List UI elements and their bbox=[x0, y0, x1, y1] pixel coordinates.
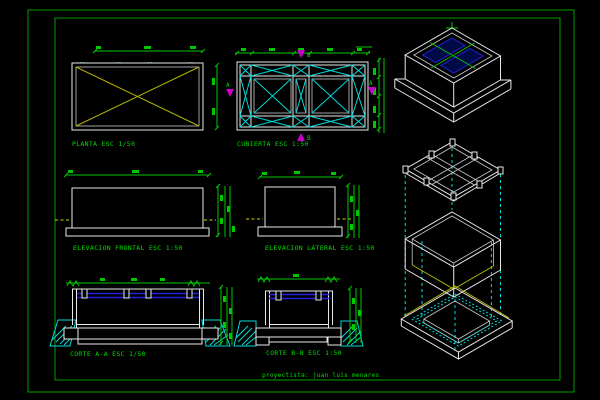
dim-text-blob bbox=[96, 46, 101, 49]
dim-text-blob bbox=[190, 46, 196, 49]
dim-text-blob bbox=[229, 333, 232, 339]
dim-text-blob bbox=[373, 68, 376, 75]
corte-aa-post bbox=[124, 289, 129, 298]
corte-aa-footing-slab bbox=[64, 328, 218, 339]
iso-tank-body-exploded bbox=[405, 212, 500, 297]
corte-bb-post bbox=[276, 291, 281, 300]
dim-text-blob bbox=[373, 106, 376, 113]
iso-frame-post bbox=[429, 151, 434, 158]
planta-right-dimension-line bbox=[215, 63, 219, 130]
section-b-top-arrow-icon bbox=[297, 50, 305, 58]
iso-tank-inner-floor bbox=[412, 265, 493, 289]
dim-text-blob bbox=[160, 278, 165, 281]
dim-text-blob bbox=[352, 298, 355, 304]
dim-text-blob bbox=[132, 170, 139, 173]
cubierta-outline bbox=[237, 62, 368, 130]
cad-sheet: PLANTA ESC 1/50 CUBIERTA ESC 1:50 A A B … bbox=[0, 0, 600, 400]
dim-text-blob bbox=[223, 296, 226, 302]
iso-frame-post bbox=[403, 166, 408, 173]
corte-aa-footing-step bbox=[78, 339, 202, 344]
iso-frame-post bbox=[451, 193, 456, 200]
dim-text-blob bbox=[212, 108, 215, 115]
corte-bb-post bbox=[316, 291, 321, 300]
iso-base-slab-assembled bbox=[395, 79, 511, 122]
corte-bb-label: CORTE B-B ESC 1:50 bbox=[266, 349, 342, 357]
drawing-area: PLANTA ESC 1/50 CUBIERTA ESC 1:50 A A B … bbox=[0, 0, 600, 400]
dim-text-blob bbox=[350, 224, 353, 230]
iso-lid-frame-exploded bbox=[403, 139, 503, 201]
planta-label: PLANTA ESC 1/50 bbox=[72, 140, 135, 148]
cubierta-x-bracing bbox=[240, 65, 365, 127]
dim-text-blob bbox=[262, 172, 267, 175]
iso-frame-outer bbox=[405, 142, 500, 197]
dim-text-blob bbox=[220, 218, 223, 224]
iso-slab-inner bbox=[424, 301, 490, 339]
lateral-label: ELEVACION LATERAL ESC 1:50 bbox=[265, 244, 375, 252]
view-elevacion-lateral: ELEVACION LATERAL ESC 1:50 bbox=[246, 171, 375, 252]
credit-line: proyectista: juan luis menares bbox=[262, 372, 379, 379]
iso-tank-rim-inner bbox=[412, 216, 493, 263]
dim-text-blob bbox=[357, 48, 362, 51]
planta-top-dimension-line bbox=[93, 49, 205, 53]
dim-text-blob bbox=[198, 170, 203, 173]
section-b-top-letter: B bbox=[307, 52, 311, 59]
iso-frame-cross-beam bbox=[427, 155, 479, 185]
section-a-right-letter: A bbox=[369, 80, 373, 87]
view-planta: PLANTA ESC 1/50 bbox=[72, 46, 219, 148]
section-b-bottom-arrow-icon bbox=[297, 133, 305, 141]
iso-tank-rim-outer bbox=[405, 212, 500, 267]
section-b-bottom-letter: B bbox=[307, 135, 311, 142]
view-corte-aa: CORTE A-A ESC 1/50 bbox=[50, 278, 232, 358]
corte-aa-post bbox=[146, 289, 151, 298]
frontal-body bbox=[72, 188, 203, 228]
dim-text-blob bbox=[293, 274, 299, 277]
corte-bb-top-dimension-line bbox=[257, 277, 340, 282]
view-cubierta: CUBIERTA ESC 1:50 bbox=[235, 47, 384, 148]
section-a-left-letter: A bbox=[226, 82, 230, 89]
frontal-label: ELEVACION FRONTAL ESC 1:50 bbox=[73, 244, 183, 252]
lateral-body bbox=[265, 187, 335, 227]
dim-text-blob bbox=[100, 278, 105, 281]
dim-text-blob bbox=[144, 46, 151, 49]
corte-aa-post bbox=[82, 289, 87, 298]
dim-text-blob bbox=[331, 172, 336, 175]
dim-text-blob bbox=[358, 310, 361, 316]
iso-assembled-tank bbox=[395, 22, 511, 122]
corte-bb-walls bbox=[265, 291, 333, 328]
dim-text-blob bbox=[131, 278, 137, 281]
iso-frame-post bbox=[472, 152, 477, 159]
corte-bb-foot-left bbox=[256, 337, 269, 345]
section-a-left-arrow-icon bbox=[226, 89, 234, 97]
frontal-top-dimension-line bbox=[64, 173, 211, 177]
dim-text-blob bbox=[352, 324, 355, 330]
corte-bb-footing-step bbox=[269, 337, 327, 342]
dim-text-blob bbox=[68, 170, 73, 173]
dim-text-blob bbox=[294, 171, 300, 174]
corte-bb-foot-right bbox=[328, 337, 341, 345]
iso-base-slab-exploded bbox=[401, 286, 512, 359]
dim-text-blob bbox=[356, 210, 359, 216]
iso-frame-post bbox=[498, 167, 503, 174]
dim-text-blob bbox=[220, 195, 223, 201]
dim-text-blob bbox=[269, 48, 275, 51]
dim-text-blob bbox=[232, 226, 235, 232]
cubierta-label: CUBIERTA ESC 1:50 bbox=[237, 140, 309, 148]
dim-text-blob bbox=[327, 48, 333, 51]
earth-hatch-lines bbox=[236, 326, 256, 345]
dim-text-blob bbox=[241, 48, 246, 51]
earth-hatch-lines bbox=[341, 326, 361, 345]
iso-frame-post bbox=[477, 181, 482, 188]
corte-aa-walls bbox=[72, 289, 204, 328]
iso-frame-post bbox=[424, 178, 429, 185]
view-elevacion-frontal: ELEVACION FRONTAL ESC 1:50 bbox=[55, 170, 235, 252]
dim-text-blob bbox=[373, 121, 376, 128]
lateral-top-dimension-line bbox=[258, 175, 343, 179]
corte-bb-footing-slab bbox=[256, 328, 341, 337]
corte-aa-post bbox=[187, 289, 192, 298]
corte-aa-top-dimension-line bbox=[66, 281, 210, 286]
iso-frame-post bbox=[450, 139, 455, 146]
frontal-base-slab bbox=[66, 228, 209, 236]
lateral-base-slab bbox=[258, 227, 342, 236]
dim-text-blob bbox=[229, 308, 232, 314]
dim-text-blob bbox=[350, 196, 353, 202]
dim-text-blob bbox=[212, 78, 215, 85]
earth-hatch-left bbox=[234, 321, 256, 346]
dim-text-blob bbox=[223, 322, 226, 328]
view-corte-bb: CORTE B-B ESC 1:50 bbox=[234, 274, 363, 357]
corte-aa-water-line bbox=[77, 294, 199, 298]
dim-text-blob bbox=[227, 206, 230, 212]
corte-aa-label: CORTE A-A ESC 1/50 bbox=[70, 350, 146, 358]
